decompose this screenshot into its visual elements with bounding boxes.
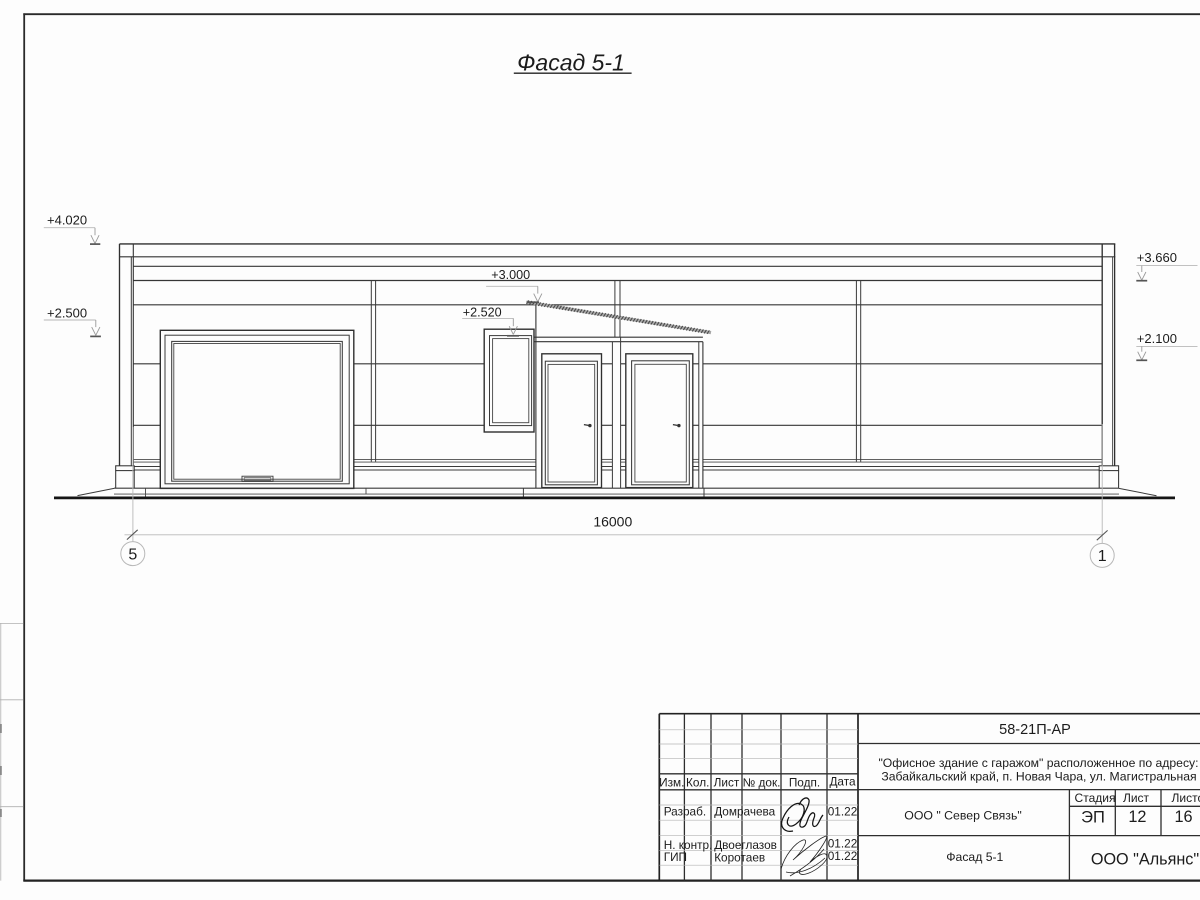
svg-text:Стадия: Стадия — [1075, 791, 1116, 805]
svg-text:+4.020: +4.020 — [47, 213, 87, 228]
svg-text:+3.660: +3.660 — [1137, 250, 1177, 265]
svg-text:Разраб.: Разраб. — [664, 804, 706, 818]
svg-text:58-21П-АР: 58-21П-АР — [999, 722, 1071, 738]
svg-text:Лист: Лист — [1123, 791, 1150, 805]
svg-text:Изм.: Изм. — [659, 776, 684, 790]
svg-text:Домрачева: Домрачева — [714, 805, 775, 819]
svg-text:Дата: Дата — [829, 775, 856, 789]
svg-text:Лист: Лист — [714, 776, 740, 790]
svg-text:Листов: Листов — [1172, 791, 1200, 805]
svg-text:1: 1 — [1098, 548, 1107, 565]
svg-text:ГИП: ГИП — [664, 850, 687, 864]
svg-text:ООО "Альянс": ООО "Альянс" — [1091, 851, 1199, 869]
svg-text:+2.100: +2.100 — [1137, 331, 1177, 346]
svg-text:Подп.: Подп. — [789, 776, 820, 790]
svg-text:Забайкальский край, п. Новая Ч: Забайкальский край, п. Новая Чара, ул. М… — [881, 770, 1196, 784]
svg-text:ЭП: ЭП — [1081, 809, 1105, 827]
svg-text:01.22: 01.22 — [828, 804, 858, 818]
svg-text:12: 12 — [1128, 808, 1146, 826]
svg-text:Фасад 5-1: Фасад 5-1 — [517, 50, 625, 76]
svg-text:ООО " Север Связь": ООО " Север Связь" — [904, 809, 1021, 823]
svg-text:Коротаев: Коротаев — [714, 850, 765, 864]
svg-text:+2.500: +2.500 — [47, 305, 87, 320]
svg-text:"Офисное здание с гаражом" рас: "Офисное здание с гаражом" расположенное… — [878, 756, 1198, 770]
svg-text:5: 5 — [128, 546, 137, 563]
svg-text:+3.000: +3.000 — [491, 268, 530, 282]
svg-text:+2.520: +2.520 — [463, 305, 502, 319]
svg-text:16: 16 — [1174, 808, 1192, 826]
svg-text:Фасад 5-1: Фасад 5-1 — [946, 850, 1003, 864]
svg-text:16000: 16000 — [593, 513, 632, 529]
svg-text:01.22: 01.22 — [828, 849, 858, 863]
svg-text:№ док.: № док. — [743, 776, 781, 790]
svg-text:Кол.: Кол. — [686, 776, 709, 790]
